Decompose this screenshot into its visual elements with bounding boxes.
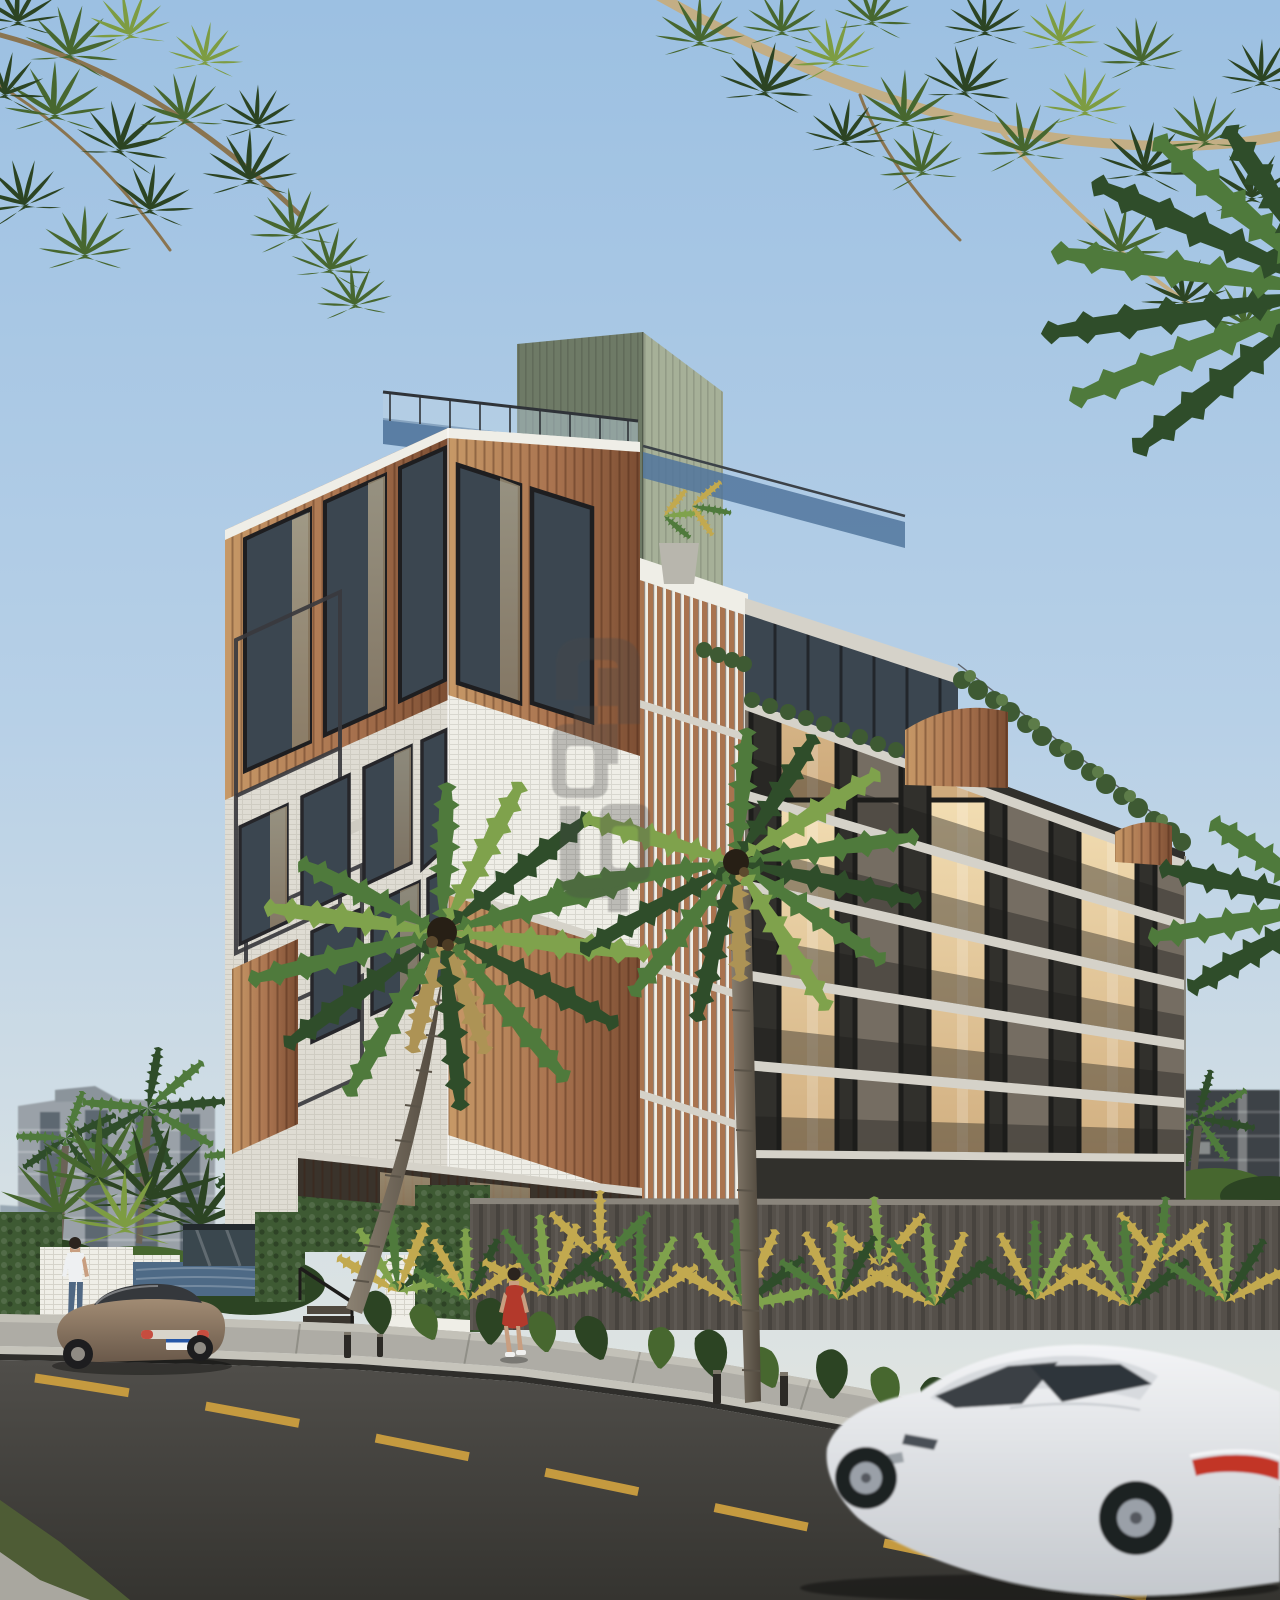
entrance-glass-box — [183, 1224, 258, 1266]
scene-render — [0, 0, 1280, 1600]
render-stage — [0, 0, 1280, 1600]
roof-planter-pot — [659, 543, 699, 584]
